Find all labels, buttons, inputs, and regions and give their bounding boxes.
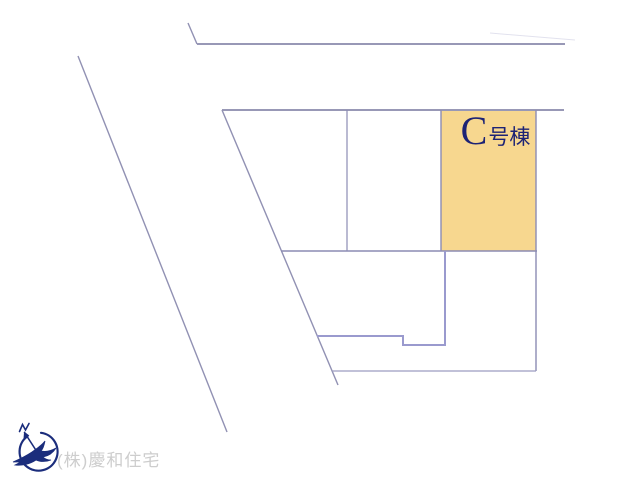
company-watermark: (株)慶和住宅: [57, 446, 160, 471]
north-compass-icon: [10, 419, 62, 476]
faint-boundary: [490, 33, 575, 40]
road-edge-left-outer: [78, 56, 227, 432]
site-plan-image: C 号棟 (株)慶和住宅: [0, 0, 640, 480]
site-plan-canvas: [0, 0, 640, 480]
road-edge-top-bend: [188, 23, 197, 44]
road-edge-left-inner: [222, 110, 338, 385]
lot-c-highlight: [441, 111, 536, 251]
lower-plot-step-boundary: [317, 251, 445, 345]
